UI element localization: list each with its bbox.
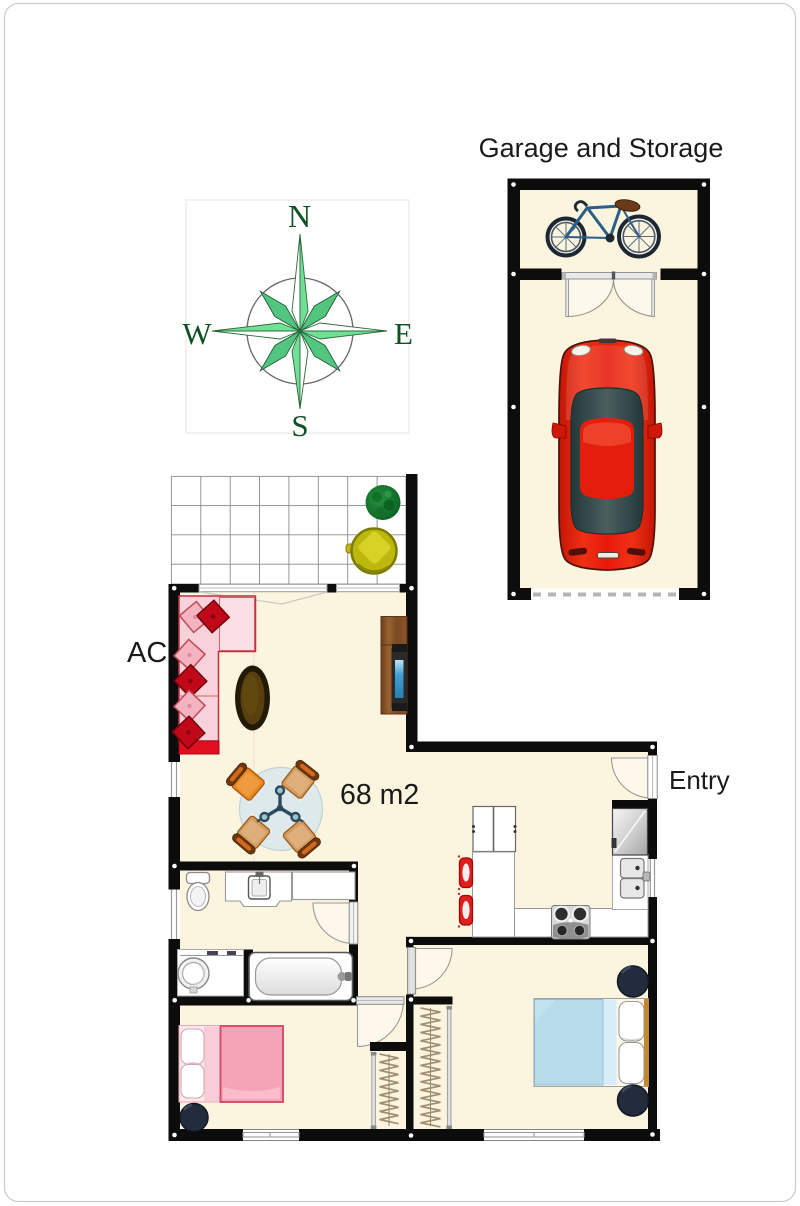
svg-text:E: E bbox=[394, 316, 413, 351]
svg-text:N: N bbox=[288, 198, 311, 234]
svg-text:S: S bbox=[291, 408, 308, 443]
svg-text:W: W bbox=[182, 316, 212, 351]
svg-text:Entry: Entry bbox=[669, 765, 730, 795]
svg-text:AC: AC bbox=[127, 637, 167, 669]
svg-text:Garage and Storage: Garage and Storage bbox=[479, 133, 724, 163]
svg-text:68 m2: 68 m2 bbox=[340, 779, 419, 811]
